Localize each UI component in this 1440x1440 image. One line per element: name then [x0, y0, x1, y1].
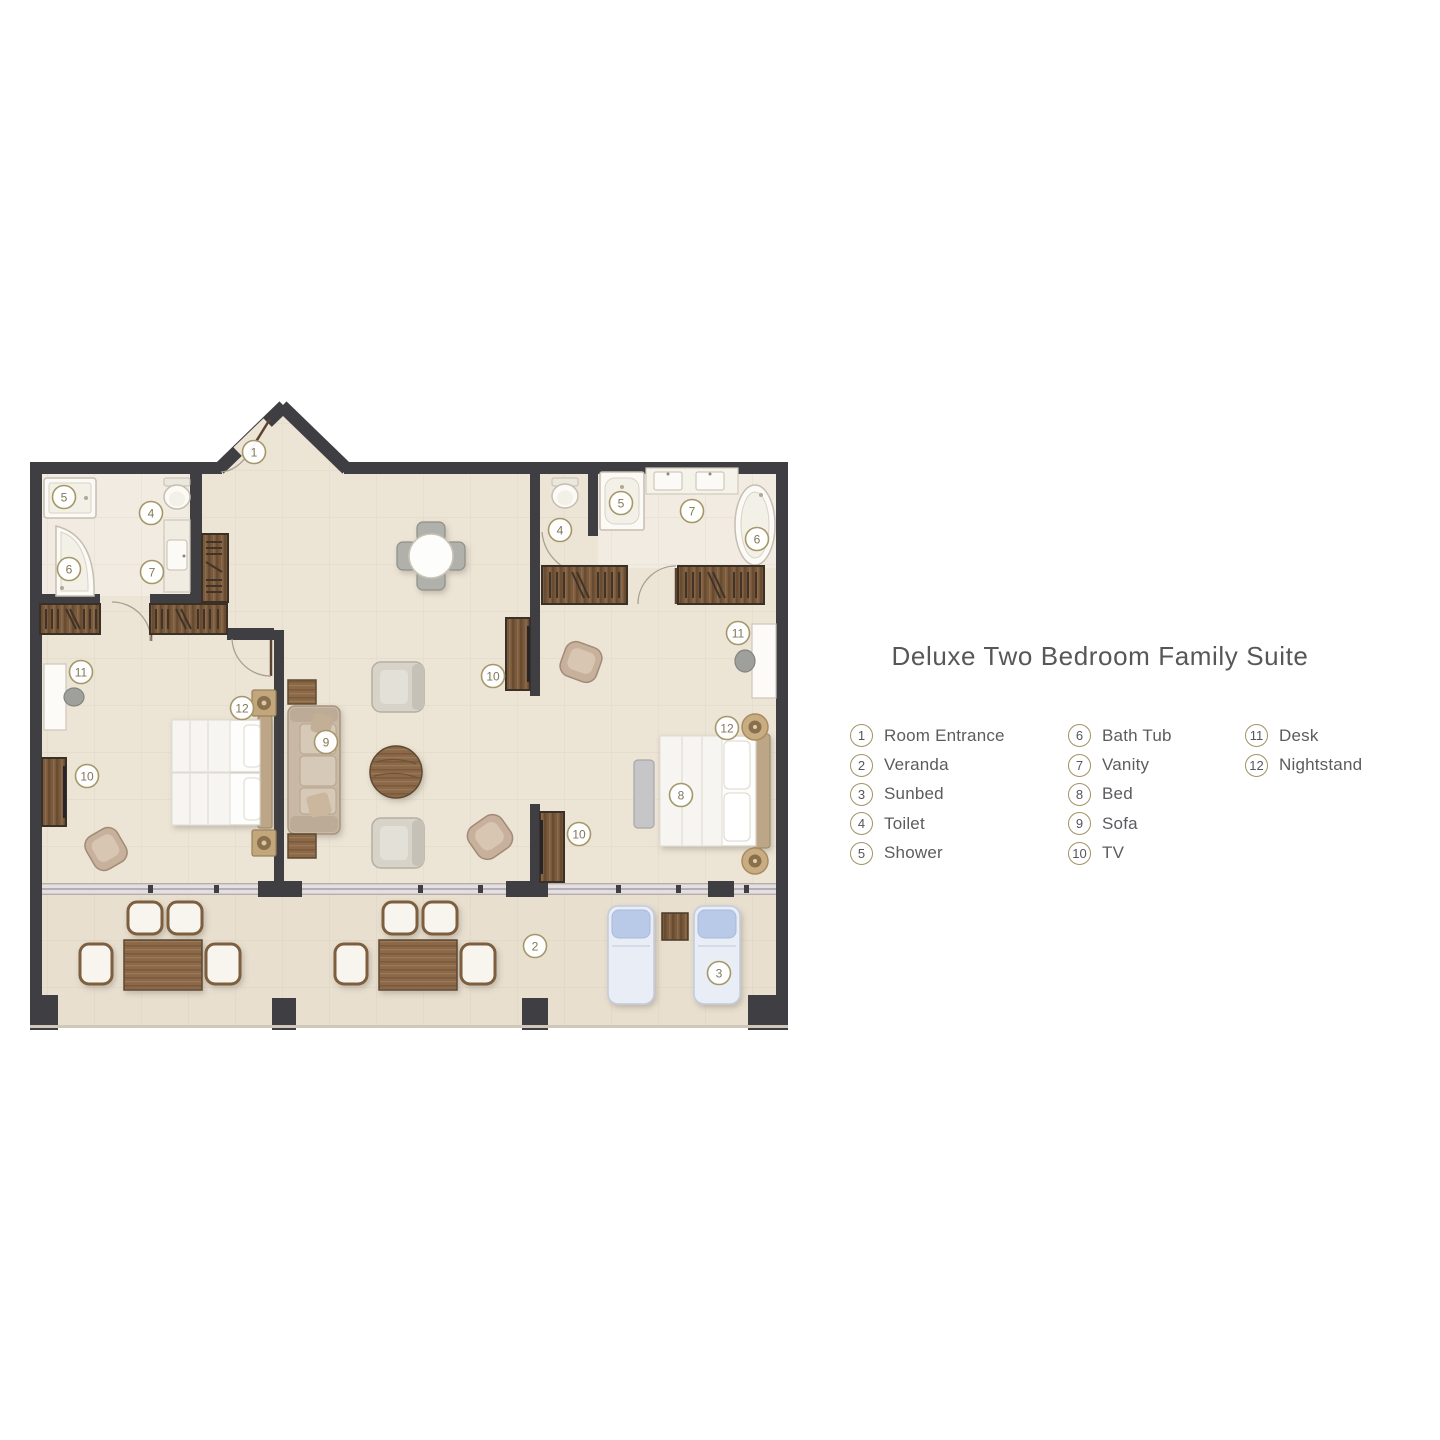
legend-num-circle: 3: [850, 783, 873, 806]
page: 123445566778910101011111212 Deluxe Two B…: [0, 0, 1440, 1440]
plan-marker-10: 10: [568, 823, 591, 846]
svg-text:5: 5: [61, 490, 68, 504]
veranda-table: [124, 940, 202, 990]
legend-num-circle: 4: [850, 812, 873, 835]
legend-item: 11Desk: [1245, 721, 1362, 750]
left-bath-wall: [190, 462, 202, 597]
plan-marker-12: 12: [231, 697, 254, 720]
svg-text:12: 12: [720, 721, 734, 735]
wardrobe: [150, 604, 227, 634]
legend-label: Toilet: [884, 814, 925, 834]
legend-num-circle: 12: [1245, 754, 1268, 777]
plan-marker-11: 11: [70, 661, 93, 684]
veranda-chair: [80, 944, 112, 984]
legend-item: 8Bed: [1068, 780, 1172, 809]
svg-text:11: 11: [732, 626, 745, 640]
legend-num-circle: 7: [1068, 754, 1091, 777]
nightstand: [252, 830, 276, 856]
plan-marker-5: 5: [53, 486, 76, 509]
plan-marker-6: 6: [746, 528, 769, 551]
hall-wardrobe: [202, 534, 228, 602]
svg-text:3: 3: [716, 966, 723, 980]
legend-item: 1Room Entrance: [850, 721, 1005, 750]
tv: [527, 626, 530, 682]
svg-text:5: 5: [618, 496, 625, 510]
svg-text:11: 11: [75, 665, 88, 679]
svg-text:4: 4: [557, 523, 564, 537]
legend-num-circle: 10: [1068, 842, 1091, 865]
svg-text:7: 7: [149, 565, 156, 579]
window-wall: [42, 883, 776, 895]
floor-plan: 123445566778910101011111212: [30, 400, 788, 1032]
pillow: [244, 725, 260, 767]
legend-label: Vanity: [1102, 755, 1149, 775]
vanity: [646, 468, 738, 494]
plan-marker-10: 10: [76, 765, 99, 788]
plan-marker-5: 5: [610, 492, 633, 515]
legend-item: 12Nightstand: [1245, 750, 1362, 779]
svg-text:10: 10: [486, 669, 500, 683]
master-partition: [530, 462, 540, 604]
legend-label: Room Entrance: [884, 726, 1005, 746]
nightstand: [742, 714, 768, 740]
desk-chair: [64, 688, 84, 706]
bench: [634, 760, 654, 828]
side-table: [288, 680, 316, 704]
svg-text:4: 4: [148, 506, 155, 520]
legend-num-circle: 9: [1068, 812, 1091, 835]
nightstand: [252, 690, 276, 716]
legend-num-circle: 1: [850, 724, 873, 747]
plan-marker-11: 11: [727, 622, 750, 645]
tv-console: [540, 812, 564, 882]
nightstand: [742, 848, 768, 874]
tv-console: [42, 758, 66, 826]
svg-text:1: 1: [251, 445, 258, 459]
svg-text:10: 10: [572, 827, 586, 841]
svg-text:6: 6: [66, 562, 73, 576]
veranda-edge: [30, 1025, 788, 1028]
wardrobe: [40, 604, 100, 634]
legend-item: 5Shower: [850, 839, 1005, 868]
legend-label: Shower: [884, 843, 943, 863]
legend-label: Bath Tub: [1102, 726, 1172, 746]
plan-marker-6: 6: [58, 558, 81, 581]
plan-marker-4: 4: [549, 519, 572, 542]
legend-label: Veranda: [884, 755, 949, 775]
svg-text:10: 10: [80, 769, 94, 783]
legend-label: TV: [1102, 843, 1124, 863]
legend-num-circle: 11: [1245, 724, 1268, 747]
svg-text:7: 7: [689, 504, 696, 518]
toilet: [552, 478, 578, 508]
svg-text:2: 2: [532, 939, 539, 953]
legend-num-circle: 8: [1068, 783, 1091, 806]
legend-item: 3Sunbed: [850, 780, 1005, 809]
sofa: [288, 706, 340, 834]
legend-item: 4Toilet: [850, 809, 1005, 838]
plan-marker-4: 4: [140, 502, 163, 525]
legend-item: 7Vanity: [1068, 750, 1172, 779]
tv: [540, 820, 543, 874]
twin-beds: [172, 716, 272, 828]
bathtub: [735, 485, 775, 565]
legend-label: Desk: [1279, 726, 1319, 746]
coffee-table: [370, 746, 422, 798]
plan-marker-10: 10: [482, 665, 505, 688]
veranda-chair: [128, 902, 162, 934]
legend-num-circle: 5: [850, 842, 873, 865]
dining-table: [409, 534, 453, 578]
plan-marker-3: 3: [708, 962, 731, 985]
legend-item: 10TV: [1068, 839, 1172, 868]
plan-marker-12: 12: [716, 717, 739, 740]
wardrobe: [678, 566, 764, 604]
legend-label: Sofa: [1102, 814, 1138, 834]
legend-num-circle: 2: [850, 754, 873, 777]
sunbed-side-table: [662, 913, 688, 940]
vanity: [164, 520, 190, 592]
tv-console: [506, 618, 530, 690]
armchair: [372, 818, 424, 868]
legend-label: Nightstand: [1279, 755, 1362, 775]
plan-marker-8: 8: [670, 784, 693, 807]
legend-item: 9Sofa: [1068, 809, 1172, 838]
plan-marker-7: 7: [681, 500, 704, 523]
legend-column: 1Room Entrance2Veranda3Sunbed4Toilet5Sho…: [850, 721, 1005, 868]
svg-text:9: 9: [323, 735, 330, 749]
page-title: Deluxe Two Bedroom Family Suite: [880, 641, 1320, 672]
svg-text:8: 8: [678, 788, 685, 802]
pillow: [724, 793, 750, 841]
plan-marker-1: 1: [243, 441, 266, 464]
toilet: [164, 478, 190, 509]
legend-item: 6Bath Tub: [1068, 721, 1172, 750]
plan-marker-7: 7: [141, 561, 164, 584]
legend-item: 2Veranda: [850, 750, 1005, 779]
pillow: [724, 741, 750, 789]
legend-label: Sunbed: [884, 784, 944, 804]
tv: [63, 766, 66, 818]
desk-chair: [735, 650, 755, 672]
legend-label: Bed: [1102, 784, 1133, 804]
legend-num-circle: 6: [1068, 724, 1091, 747]
legend-column: 6Bath Tub7Vanity8Bed9Sofa10TV: [1068, 721, 1172, 868]
pillow: [244, 778, 260, 820]
veranda-chair: [206, 944, 240, 984]
svg-text:12: 12: [235, 701, 249, 715]
plan-marker-9: 9: [315, 731, 338, 754]
sunbed: [608, 906, 654, 1004]
veranda-chair: [168, 902, 202, 934]
veranda: [80, 902, 740, 1004]
legend-column: 11Desk12Nightstand: [1245, 721, 1362, 780]
plan-marker-2: 2: [524, 935, 547, 958]
wardrobe: [542, 566, 627, 604]
armchair: [372, 662, 424, 712]
side-table: [288, 834, 316, 858]
svg-text:6: 6: [754, 532, 761, 546]
